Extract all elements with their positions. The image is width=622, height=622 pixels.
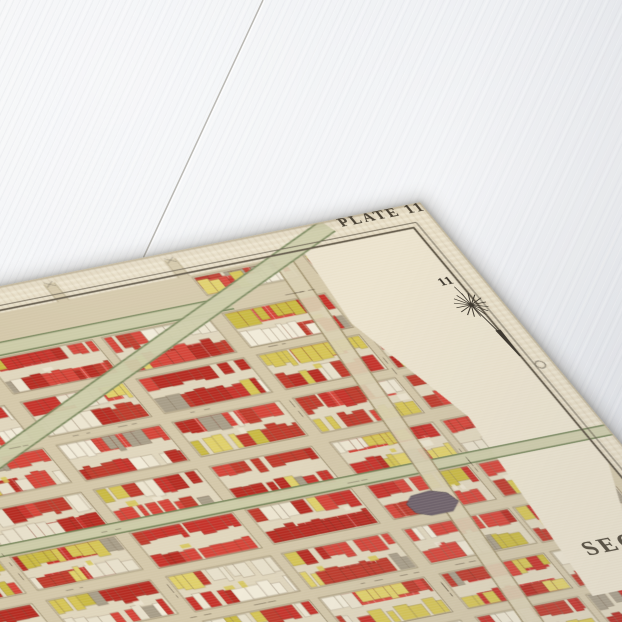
- product-photo-scene: PLATE 11 11 SECT: [0, 0, 622, 622]
